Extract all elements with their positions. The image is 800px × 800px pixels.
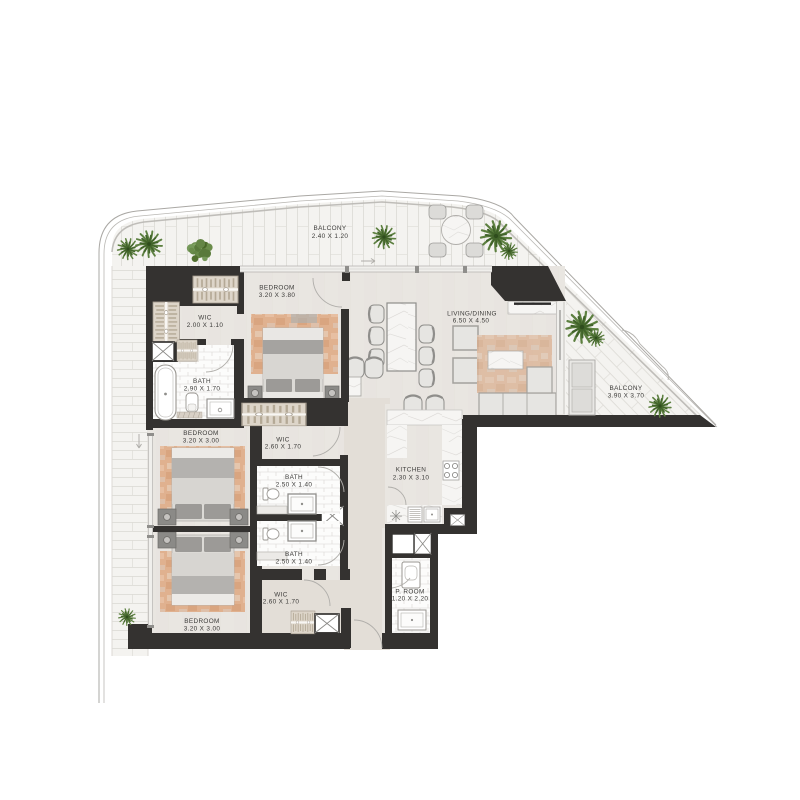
svg-text:3.20 X 3.00: 3.20 X 3.00 xyxy=(184,626,221,633)
svg-text:6.50 X 4.50: 6.50 X 4.50 xyxy=(453,318,490,325)
svg-text:BATH: BATH xyxy=(193,378,211,385)
svg-text:2.50 X 1.40: 2.50 X 1.40 xyxy=(276,482,313,489)
svg-text:WIC: WIC xyxy=(276,437,290,444)
svg-text:3.20 X 3.00: 3.20 X 3.00 xyxy=(183,438,220,445)
svg-text:BALCONY: BALCONY xyxy=(610,385,643,392)
svg-text:BALCONY: BALCONY xyxy=(314,225,347,232)
svg-text:KITCHEN: KITCHEN xyxy=(396,467,427,474)
svg-text:LIVING/DINING: LIVING/DINING xyxy=(447,311,497,318)
svg-text:BATH: BATH xyxy=(285,474,303,481)
svg-text:2.00 X 1.10: 2.00 X 1.10 xyxy=(187,322,224,329)
svg-text:2.50 X 1.40: 2.50 X 1.40 xyxy=(276,559,313,566)
svg-text:2.90 X 1.70: 2.90 X 1.70 xyxy=(184,386,221,393)
svg-text:3.90 X 3.70: 3.90 X 3.70 xyxy=(608,393,645,400)
svg-text:1.20 X 2.20: 1.20 X 2.20 xyxy=(392,596,429,603)
svg-text:BATH: BATH xyxy=(285,551,303,558)
svg-text:2.40 X 1.20: 2.40 X 1.20 xyxy=(312,233,349,240)
svg-text:BEDROOM: BEDROOM xyxy=(259,285,294,292)
svg-text:BEDROOM: BEDROOM xyxy=(184,618,219,625)
svg-text:3.20 X 3.80: 3.20 X 3.80 xyxy=(259,292,296,299)
svg-text:2.60 X 1.70: 2.60 X 1.70 xyxy=(265,444,302,451)
svg-text:BEDROOM: BEDROOM xyxy=(183,430,218,437)
svg-text:2.60 X 1.70: 2.60 X 1.70 xyxy=(263,599,300,606)
svg-text:2.30 X 3.10: 2.30 X 3.10 xyxy=(393,475,430,482)
svg-text:P. ROOM: P. ROOM xyxy=(395,589,424,596)
svg-text:WIC: WIC xyxy=(274,592,288,599)
svg-text:WIC: WIC xyxy=(198,315,212,322)
